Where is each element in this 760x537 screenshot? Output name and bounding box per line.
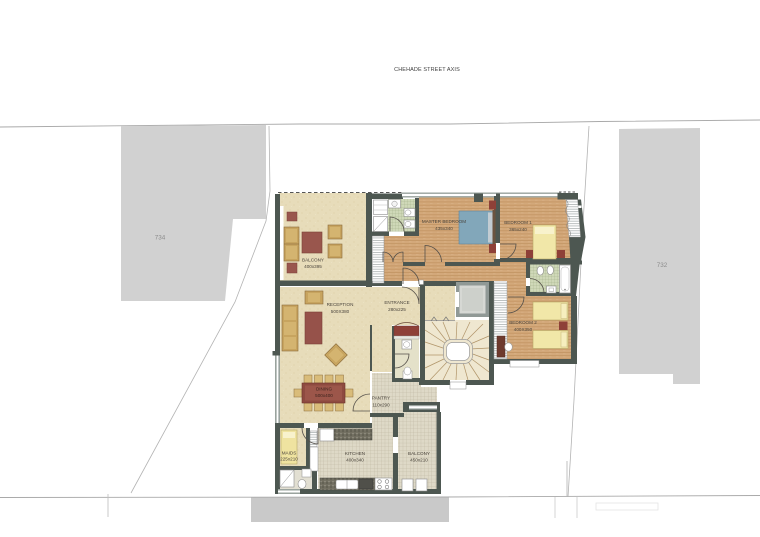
- svg-text:BEDROOM 2: BEDROOM 2: [509, 320, 537, 325]
- svg-text:RECEPTION: RECEPTION: [327, 302, 354, 307]
- svg-text:ENTRANCE: ENTRANCE: [384, 300, 409, 305]
- svg-text:280x225: 280x225: [388, 307, 406, 312]
- svg-text:DINING: DINING: [316, 387, 333, 392]
- svg-text:450x210: 450x210: [410, 458, 428, 463]
- svg-text:BALCONY: BALCONY: [408, 451, 430, 456]
- svg-text:BEDROOM 1: BEDROOM 1: [504, 220, 532, 225]
- svg-text:500X380: 500X380: [331, 309, 350, 314]
- svg-text:MAIDS: MAIDS: [282, 451, 297, 456]
- svg-text:365x240: 365x240: [509, 227, 527, 232]
- svg-text:KITCHEN: KITCHEN: [345, 451, 365, 456]
- svg-text:225x210: 225x210: [280, 457, 298, 462]
- svg-text:MASTER BEDROOM: MASTER BEDROOM: [422, 219, 466, 224]
- svg-text:732: 732: [657, 262, 668, 269]
- svg-text:734: 734: [155, 235, 166, 242]
- svg-text:435x340: 435x340: [435, 226, 453, 231]
- svg-text:PANTRY: PANTRY: [372, 396, 390, 401]
- svg-text:400x340: 400x340: [346, 458, 364, 463]
- svg-text:400X350: 400X350: [514, 327, 533, 332]
- svg-text:110x290: 110x290: [372, 403, 390, 408]
- svg-text:500x400: 500x400: [315, 393, 333, 398]
- svg-text:CHEHADE STREET AXIS: CHEHADE STREET AXIS: [394, 67, 460, 73]
- svg-text:BALCONY: BALCONY: [302, 258, 324, 263]
- svg-text:400x395: 400x395: [304, 264, 322, 269]
